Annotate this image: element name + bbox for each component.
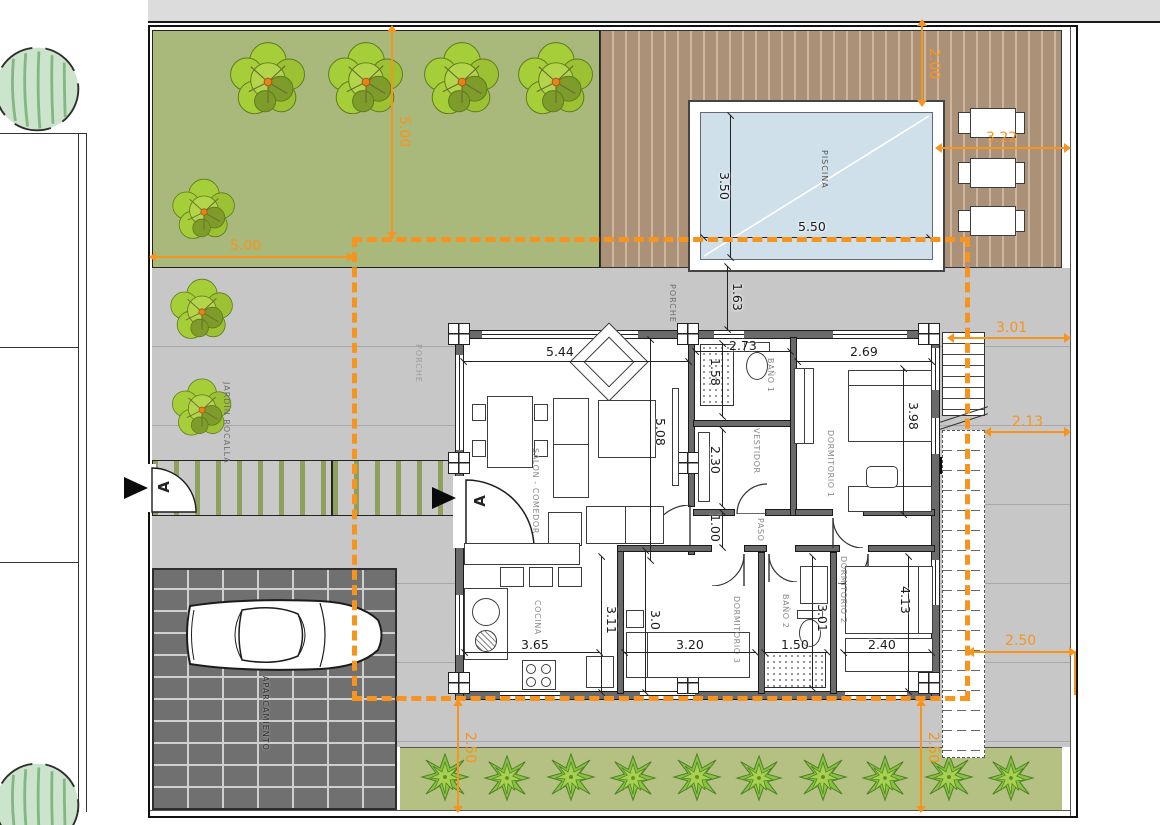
- setback-dim-line: [948, 337, 1070, 339]
- bush-icon: [798, 752, 848, 802]
- parking-label: APARCAMIENTO: [261, 676, 270, 751]
- setback-dim-line: [391, 26, 393, 238]
- bush-icon: [861, 754, 909, 802]
- plot-boundary-inner-bottom: [150, 810, 1070, 811]
- street-tree-icon: [0, 758, 84, 825]
- sun-lounger-head: [958, 112, 971, 134]
- street-strip: [148, 0, 1160, 23]
- setback-ext-line: [1074, 651, 1076, 695]
- street-tree-icon: [0, 42, 84, 136]
- sidewalk-line: [78, 133, 79, 812]
- tree-icon: [414, 34, 510, 130]
- setback-dim-line: [457, 700, 459, 812]
- dim-pool-offset: 2.00: [926, 48, 942, 79]
- bush-icon: [987, 754, 1035, 802]
- sidewalk-line: [0, 347, 79, 348]
- pool-label: PISCINA: [820, 150, 829, 189]
- bush-icon: [735, 754, 783, 802]
- gate-section-marker: A: [155, 481, 173, 493]
- sun-lounger: [970, 206, 1016, 236]
- bush-icon: [609, 754, 657, 802]
- sidewalk-line: [86, 133, 87, 812]
- setback-dim-line: [936, 147, 1070, 149]
- tree-icon: [508, 34, 604, 130]
- dim-pool-height: 3.50: [717, 172, 732, 200]
- dim-setback-top: 5.00: [396, 116, 412, 147]
- tree-icon: [220, 34, 316, 130]
- dim-stair-side2: 2.13: [1012, 414, 1043, 430]
- sun-lounger-foot: [1015, 162, 1025, 184]
- dim-stair-side: 3.01: [996, 320, 1027, 336]
- setback-dim-line: [920, 700, 922, 812]
- setback-dim-line: [985, 431, 1070, 433]
- sun-lounger-head: [958, 210, 971, 232]
- bush-icon: [672, 752, 722, 802]
- dim-side-right: 2.50: [1005, 633, 1036, 649]
- dim-setback-left: 5.00: [230, 238, 261, 254]
- site-plan: PISCINA 3.50 5.50 APARCAMIENTO A JARDÍN …: [0, 0, 1160, 825]
- dim-deck-side: 3.22: [986, 130, 1017, 146]
- bush-icon: [546, 752, 596, 802]
- sun-lounger-foot: [1015, 210, 1025, 232]
- section-arrow-icon: [124, 477, 148, 499]
- sun-lounger-head: [958, 162, 971, 184]
- sun-lounger: [970, 158, 1016, 188]
- dim-bottom-right: 2.50: [925, 732, 941, 763]
- setback-boundary: [352, 237, 970, 701]
- setback-dim-line: [921, 20, 923, 106]
- dim-pool-width: 5.50: [798, 219, 826, 234]
- sidewalk-line: [0, 562, 79, 563]
- setback-dim-line: [150, 256, 353, 258]
- tree-icon: [162, 272, 242, 352]
- setback-dim-line: [968, 651, 1075, 653]
- bush-icon: [483, 754, 531, 802]
- rock-garden-label: JARDÍN ROCALLA: [222, 382, 231, 464]
- dim-bottom-left: 2.50: [462, 732, 478, 763]
